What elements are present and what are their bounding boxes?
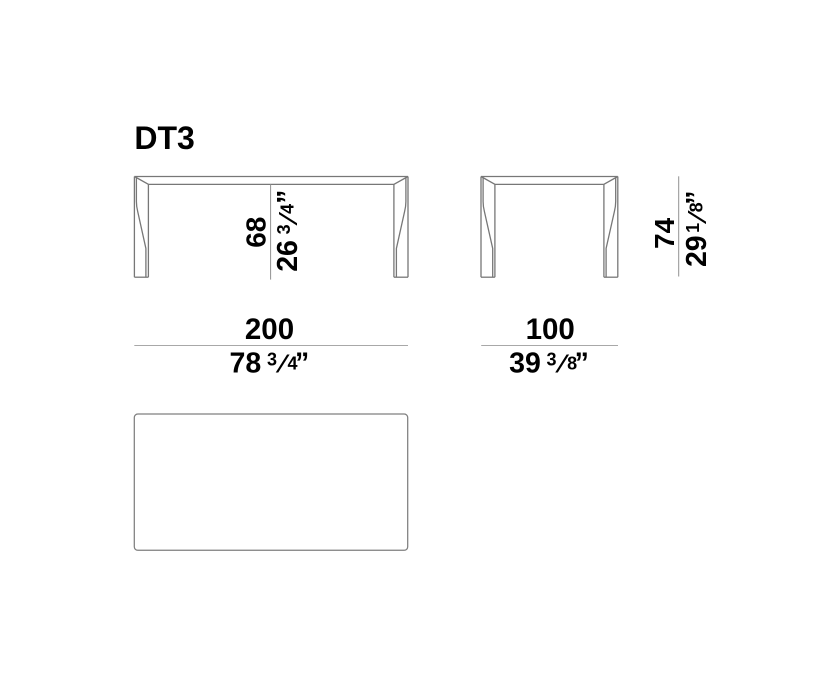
svg-text:26 3⁄4”: 26 3⁄4” bbox=[272, 190, 304, 272]
svg-text:78 3⁄4”: 78 3⁄4” bbox=[230, 348, 310, 380]
svg-text:68: 68 bbox=[241, 217, 272, 248]
svg-text:39 3⁄8”: 39 3⁄8” bbox=[509, 348, 589, 380]
svg-text:291⁄8”: 291⁄8” bbox=[681, 191, 713, 268]
svg-text:74: 74 bbox=[649, 217, 680, 249]
svg-text:200: 200 bbox=[245, 313, 294, 346]
svg-text:DT3: DT3 bbox=[134, 120, 194, 156]
svg-text:100: 100 bbox=[526, 313, 575, 346]
